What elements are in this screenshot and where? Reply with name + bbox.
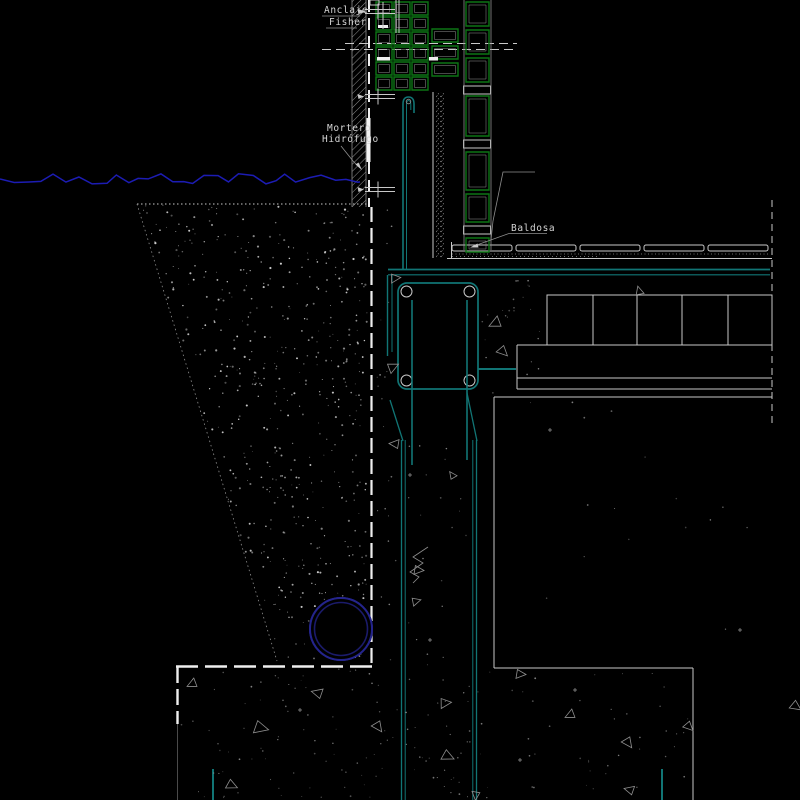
- label-mortero: Mortero: [327, 123, 371, 134]
- wall-face-hatch: [352, 0, 371, 207]
- label-fisher: Fisher: [329, 17, 367, 28]
- floor-slab-right: [447, 200, 772, 800]
- generated-detail: [0, 0, 800, 800]
- label-baldosa: Baldosa: [470, 172, 555, 248]
- band-beam: [494, 345, 772, 397]
- foundation-step-outline: [494, 397, 693, 800]
- footing-outline: [176, 667, 373, 800]
- mortar-stipple-strip: [433, 92, 445, 258]
- earth-fill-trapezoid: [137, 204, 368, 661]
- column-membrane-lines: [213, 393, 662, 800]
- beam-stirrup-rebar: [398, 283, 516, 465]
- label-hidrofugo: Hidrófugo: [322, 134, 379, 145]
- label-baldosa-text: Baldosa: [511, 223, 555, 234]
- cad-canvas: Anclaje Fisher Mortero Hidrófugo Baldosa: [0, 0, 800, 800]
- hollow-brick-row: [547, 295, 772, 345]
- tile-row: [452, 245, 768, 251]
- construction-detail-drawing: Anclaje Fisher Mortero Hidrófugo Baldosa: [0, 0, 800, 800]
- label-anclaje-fisher: Anclaje Fisher: [322, 5, 368, 28]
